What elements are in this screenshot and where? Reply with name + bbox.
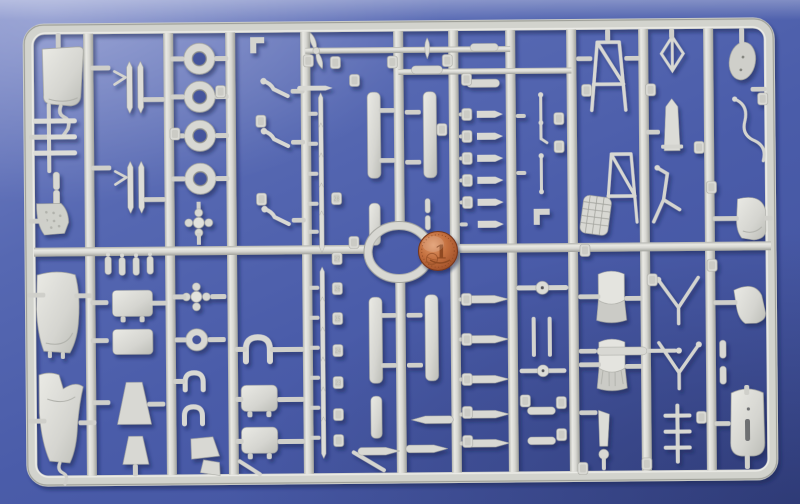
runner-vertical-5-lower [395,281,407,473]
sprue-photo: 28 27 26 25 24 23 1 [0,0,800,504]
connector-stub [144,197,166,202]
engine-cowling-part-large [730,389,765,456]
bomb-rack-blade [33,118,77,123]
connector-stub [713,300,737,305]
part-tag [461,293,471,305]
part-tag [303,55,313,67]
plate-part-small [200,460,221,476]
photo-canvas: 28 27 26 25 24 23 1 [0,0,800,504]
part-tag-number: 28 [333,197,339,203]
wheel-ring-part [184,120,215,151]
ladder-frame-part [663,403,692,463]
small-cylinder-part [720,366,727,384]
part-tag [462,152,472,164]
connector-stub [381,313,397,318]
connector-stub [175,337,187,342]
connector-stub [172,294,186,299]
hub-part [182,283,210,311]
small-cylinder-part [425,199,430,213]
part-tag [256,193,266,205]
bomb-part [406,445,448,453]
connector-stub [214,56,228,61]
bomb-part [358,447,400,455]
connector-stub [578,294,600,299]
wheel-axle-part [516,281,568,294]
connector-stub [277,397,304,402]
small-cylinder-part [527,407,555,415]
connector-stub [579,362,601,367]
u-pipe-part [246,337,270,361]
cowl-scoop-part [736,197,766,240]
part-tag [387,56,397,68]
part-tag [463,435,473,447]
part-tag [462,174,472,186]
connector-stub [605,29,610,41]
part-tag [696,411,706,423]
part-tag [170,128,180,140]
part-tag [462,130,472,142]
connector-stub [407,363,423,368]
stick-part [532,317,536,357]
part-tag [554,113,564,125]
kite-strut-frame [661,37,683,71]
connector-stub [624,56,640,61]
wing-strut-pair [115,161,144,213]
part-tag [463,196,473,208]
connector-stub [381,363,397,368]
small-cylinder-part [425,216,430,230]
seat-part-louvered [597,339,627,391]
part-tag [520,395,530,407]
connector-stub [91,338,109,343]
part-tag [707,259,717,271]
connector-stub [235,347,247,352]
radiator-grille-part [579,195,612,236]
connector-stub [292,218,306,223]
funnel-part [92,382,165,425]
connector-stub [215,176,229,181]
connector-stub [149,301,167,306]
part-tag [646,84,656,96]
interplane-strut-bar [369,297,383,383]
part-tag-number: 26 [334,287,340,293]
funnel-part-small [123,436,149,476]
connector-stub [669,29,674,39]
part-tag [462,108,472,120]
teardrop-part [425,38,430,59]
part-tag [256,115,266,127]
arch-part [185,373,203,390]
sprue: 28 27 26 25 24 23 [24,19,777,486]
control-lever-part [260,78,287,96]
connector-stub [744,385,749,395]
plate-part [188,434,220,461]
hatch-panel-part [113,329,153,354]
engine-cowling-part [42,47,84,106]
connector-stub [379,158,395,163]
control-lever-part [261,206,288,224]
part-tag [647,274,657,286]
part-tag [333,409,343,421]
part-tag [462,373,472,385]
connector-stub [291,140,305,145]
cowl-scoop-part [733,283,768,326]
runner-horizontal-mid-right [452,241,771,253]
tank-part [241,385,277,417]
connector-stub [210,294,226,299]
part-tag [334,434,344,446]
small-part-rows [459,111,504,228]
connector-stub [714,421,730,426]
part-tag [330,57,340,69]
seat-part [596,271,626,323]
part-tag-number: 24 [335,349,341,355]
control-lever-part [261,128,288,146]
part-tag [461,73,471,85]
part-tag [349,236,359,248]
wheel-ring-part [185,163,216,194]
coin-highlight [422,236,444,252]
wheel-part-small [186,329,208,351]
arch-part [184,407,202,424]
connector-stub [270,347,304,352]
connector-stub [764,216,773,221]
part-tag [580,244,590,256]
connector-stub [625,364,643,369]
interplane-strut-bar-short [371,396,382,438]
connector-stub [235,397,243,402]
wheel-axle-part [520,365,567,377]
tank-part [242,427,278,459]
connector-stub [91,166,111,171]
part-tag [642,458,652,470]
connector-stub [278,439,305,444]
part-tag [216,86,226,98]
part-tag [349,74,359,86]
wheel-ring-part [184,43,215,74]
connector-stub [171,94,185,99]
linkage-rod-part [539,153,545,194]
connector-stub [405,110,421,115]
small-cylinder-part [528,437,556,445]
part-tag [442,55,452,67]
part-tag [557,429,567,441]
scale-coin: 1 [419,232,458,271]
finned-bomb-part [661,99,683,151]
hatch-panel-part [112,290,152,322]
cabane-strut-frame [591,42,626,110]
part-tag-number: 23 [335,381,341,387]
wheel-ring-part [184,81,215,112]
part-tag-numbered-cluster: 28 27 26 25 24 23 [331,193,343,389]
bomb-rows-lower [458,295,509,447]
small-cylinder-part [470,43,498,51]
small-cylinder-part [53,172,60,190]
connector-stub [745,455,750,469]
bracket-part [534,209,550,225]
part-tag [706,181,716,193]
part-tag [578,462,588,474]
connector-stub [713,216,739,221]
connector-stub [624,296,642,301]
parts-column-2-wheels [170,43,232,476]
connector-stub [739,28,744,44]
runner-horizontal-mid-left [34,245,368,257]
connector-stub [516,114,526,118]
connector-stub [208,337,226,342]
connector-stub [27,293,45,298]
linkage-rod-part [538,92,547,143]
part-tag [758,93,768,105]
interplane-strut-bar [425,295,439,381]
part-tag [437,124,447,136]
hub-part [185,209,213,237]
connector-stub [170,56,184,61]
connector-stub [576,56,592,61]
connector-stub [171,176,185,181]
part-tag [554,141,564,153]
parts-column-3 [232,37,308,475]
connector-stub [197,233,201,245]
parts-column-1 [88,61,169,477]
part-tag [694,141,704,153]
part-tag [462,333,472,345]
wing-strut-pair [114,61,143,113]
connector-stub [28,419,46,424]
connector-stub [516,171,526,175]
connector-stub [215,133,229,138]
connector-stub [407,313,423,318]
stick-part [548,317,552,357]
connector-stub [646,130,660,135]
connector-stub [29,135,47,140]
small-cylinder-part [720,340,727,358]
part-tag [582,84,592,96]
landing-gear-leg-part [598,410,610,470]
connector-stub [751,87,767,92]
connector-stub [405,160,421,165]
fuselage-panel-part-1 [36,272,79,359]
part-tag-number: 25 [334,317,340,323]
connector-stub [74,293,92,298]
part-tag-number: 27 [334,257,340,263]
stick-part [297,86,332,91]
connector-stub [90,300,108,305]
connector-stub [579,410,597,415]
rod-part [240,461,260,474]
engine-block-part [35,199,71,238]
connector-stub [379,108,395,113]
part-tag [556,397,566,409]
bent-strut-part [653,165,679,222]
interplane-strut-bar [423,92,437,178]
interplane-strut-bar [367,92,381,178]
float-part [411,66,442,74]
connector-stub [90,66,110,71]
bracket-part [250,37,264,53]
connector-stub [236,439,244,444]
wire-part [732,96,764,161]
connector-stub [78,420,96,425]
bomb-rack-blade [33,150,77,155]
landing-gear-vee-part [655,276,698,323]
part-tag [462,406,472,418]
connector-stub [143,97,165,102]
wheel-disc-part [726,40,758,82]
connector-stub [29,219,47,224]
fuselage-panel-part-2 [39,373,84,484]
connector-stub [56,33,61,49]
connector-stub [173,379,185,384]
bomb-part [411,416,453,424]
